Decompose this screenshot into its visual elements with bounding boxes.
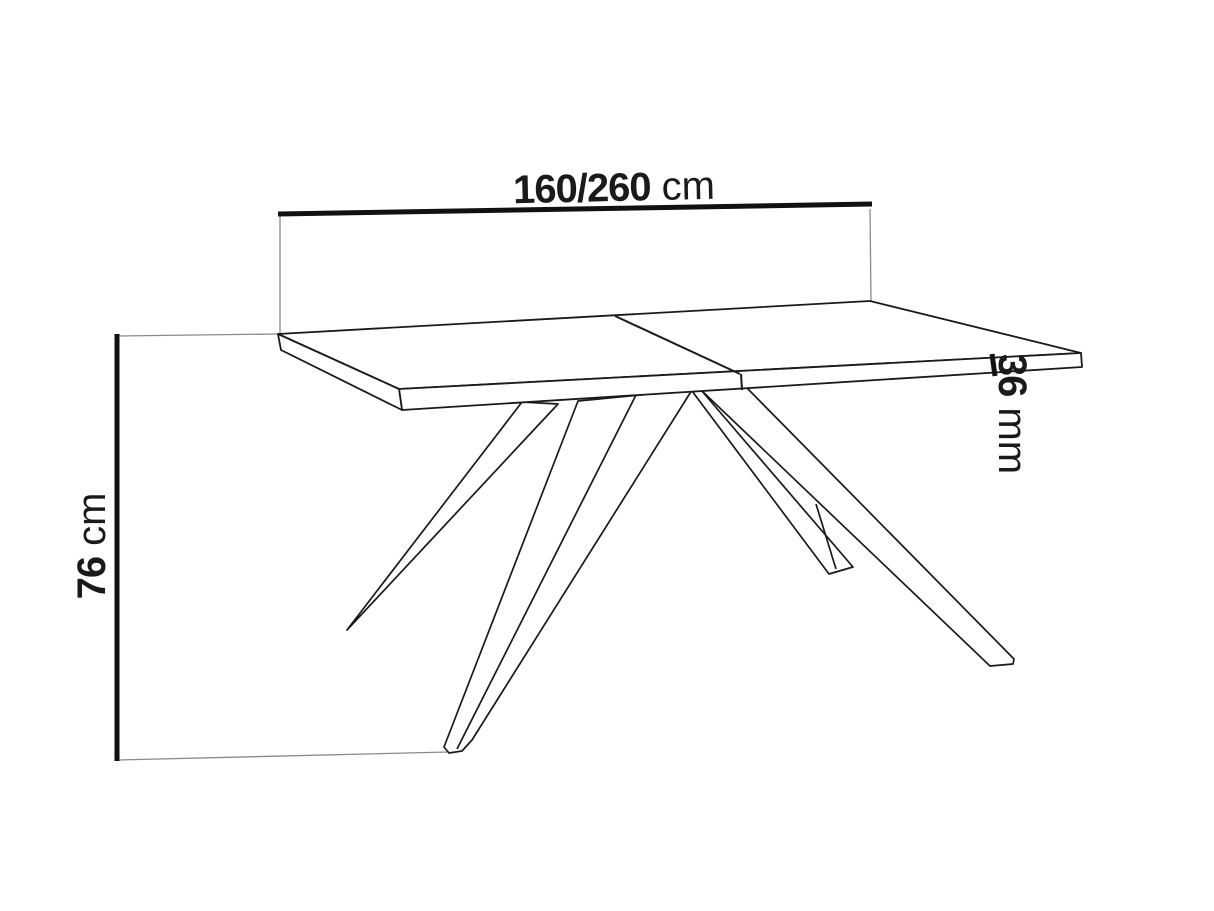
technical-drawing-canvas: 160/260 cm 76 cm 36 mm	[0, 0, 1214, 911]
thickness-unit: mm	[992, 407, 1032, 474]
length-unit: cm	[661, 166, 715, 207]
length-value: 160/260	[513, 167, 651, 210]
table-top-split-front-tick	[741, 374, 742, 390]
height-dimension-label: 76 cm	[72, 493, 112, 600]
height-unit: cm	[72, 493, 112, 546]
extension-line-height-top	[118, 334, 277, 336]
table-leg-front-left	[444, 390, 692, 753]
length-dimension-label: 160/260 cm	[513, 166, 716, 211]
extension-line-height-bottom	[118, 752, 448, 760]
thickness-dimension-label: 36 mm	[992, 354, 1032, 474]
extension-line-length-right	[870, 209, 871, 301]
thickness-value: 36	[992, 354, 1032, 397]
table-leg-front-left-crease-line	[457, 395, 636, 749]
table-leg-front-right	[701, 386, 1014, 666]
height-value: 76	[72, 557, 112, 600]
